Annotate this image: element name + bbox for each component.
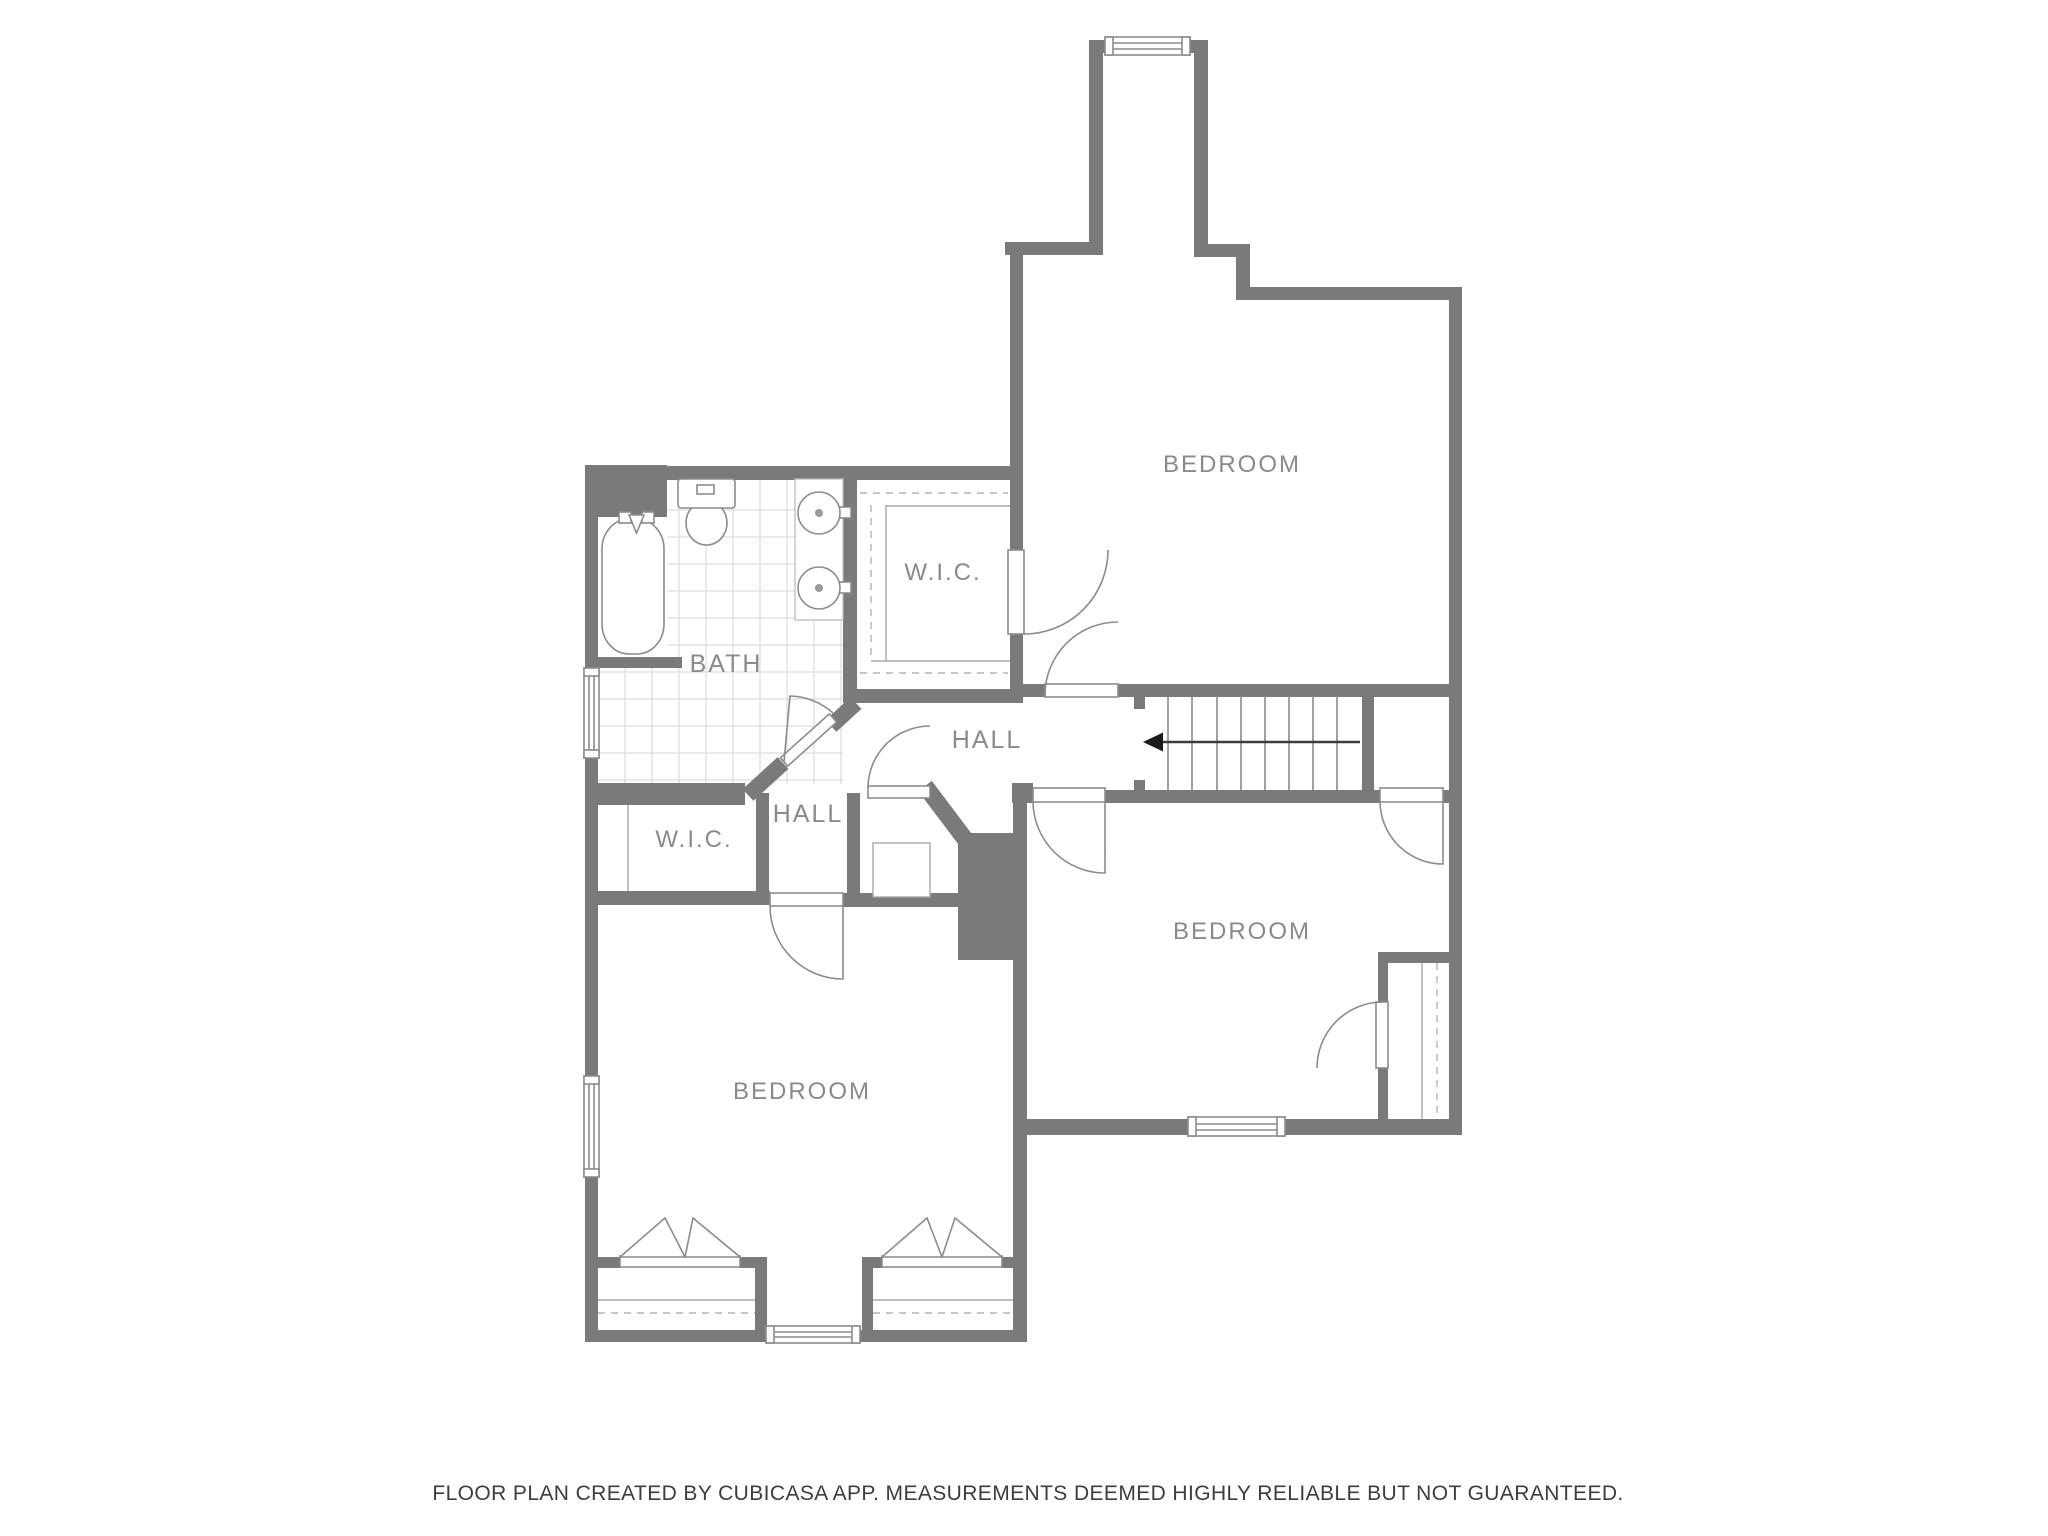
door-wic-top-to-bedroom (1008, 550, 1108, 634)
room-label-hall-lower: HALL (773, 800, 844, 828)
window-bedroom-right-bottom (1188, 1117, 1285, 1136)
stair-arrow-icon (1143, 733, 1163, 752)
bifold-doors-left-closet (620, 1218, 740, 1267)
room-label-hall-main: HALL (952, 726, 1023, 754)
toilet (678, 479, 735, 545)
bedroom-right-closet-interior (1422, 963, 1437, 1119)
room-label-bedroom-top: BEDROOM (1163, 451, 1301, 478)
window-top-protrusion (1105, 37, 1190, 55)
room-label-wic-top: W.I.C. (904, 559, 981, 586)
door-hall-to-bedroom-right-right (1380, 788, 1443, 864)
room-label-bath: BATH (690, 650, 763, 678)
floor-plan-page: BEDROOM W.I.C. BATH HALL HALL W.I.C. BED… (0, 0, 2048, 1536)
door-hall-to-bedroom-right-left (1033, 788, 1105, 873)
window-bottom-center (766, 1326, 860, 1343)
staircase (1143, 696, 1360, 790)
floor-plan-canvas: BEDROOM W.I.C. BATH HALL HALL W.I.C. BED… (0, 0, 2048, 1536)
room-label-bedroom-right: BEDROOM (1173, 918, 1311, 945)
room-label-bedroom-bottom-left: BEDROOM (733, 1078, 871, 1105)
footer-disclaimer: FLOOR PLAN CREATED BY CUBICASA APP. MEAS… (432, 1482, 1623, 1505)
bathtub (602, 512, 664, 654)
bifold-doors-right-closet (882, 1218, 1002, 1267)
door-bedroom-right-closet (1317, 1002, 1388, 1068)
walls (585, 40, 1462, 1342)
room-label-wic-lower: W.I.C. (655, 826, 732, 853)
door-bath-diagonal (780, 696, 836, 766)
window-bath-left (584, 668, 599, 758)
closet-room-box (873, 843, 930, 897)
room-labels: BEDROOM W.I.C. BATH HALL HALL W.I.C. BED… (655, 451, 1311, 1105)
bottom-closets-interior (598, 1300, 1013, 1313)
door-hall-to-closet-room (868, 726, 930, 798)
door-hall-lower-to-bedroom (770, 893, 843, 979)
window-bedroom-left (584, 1076, 599, 1177)
door-bedroom-top-to-hall (1045, 622, 1118, 697)
